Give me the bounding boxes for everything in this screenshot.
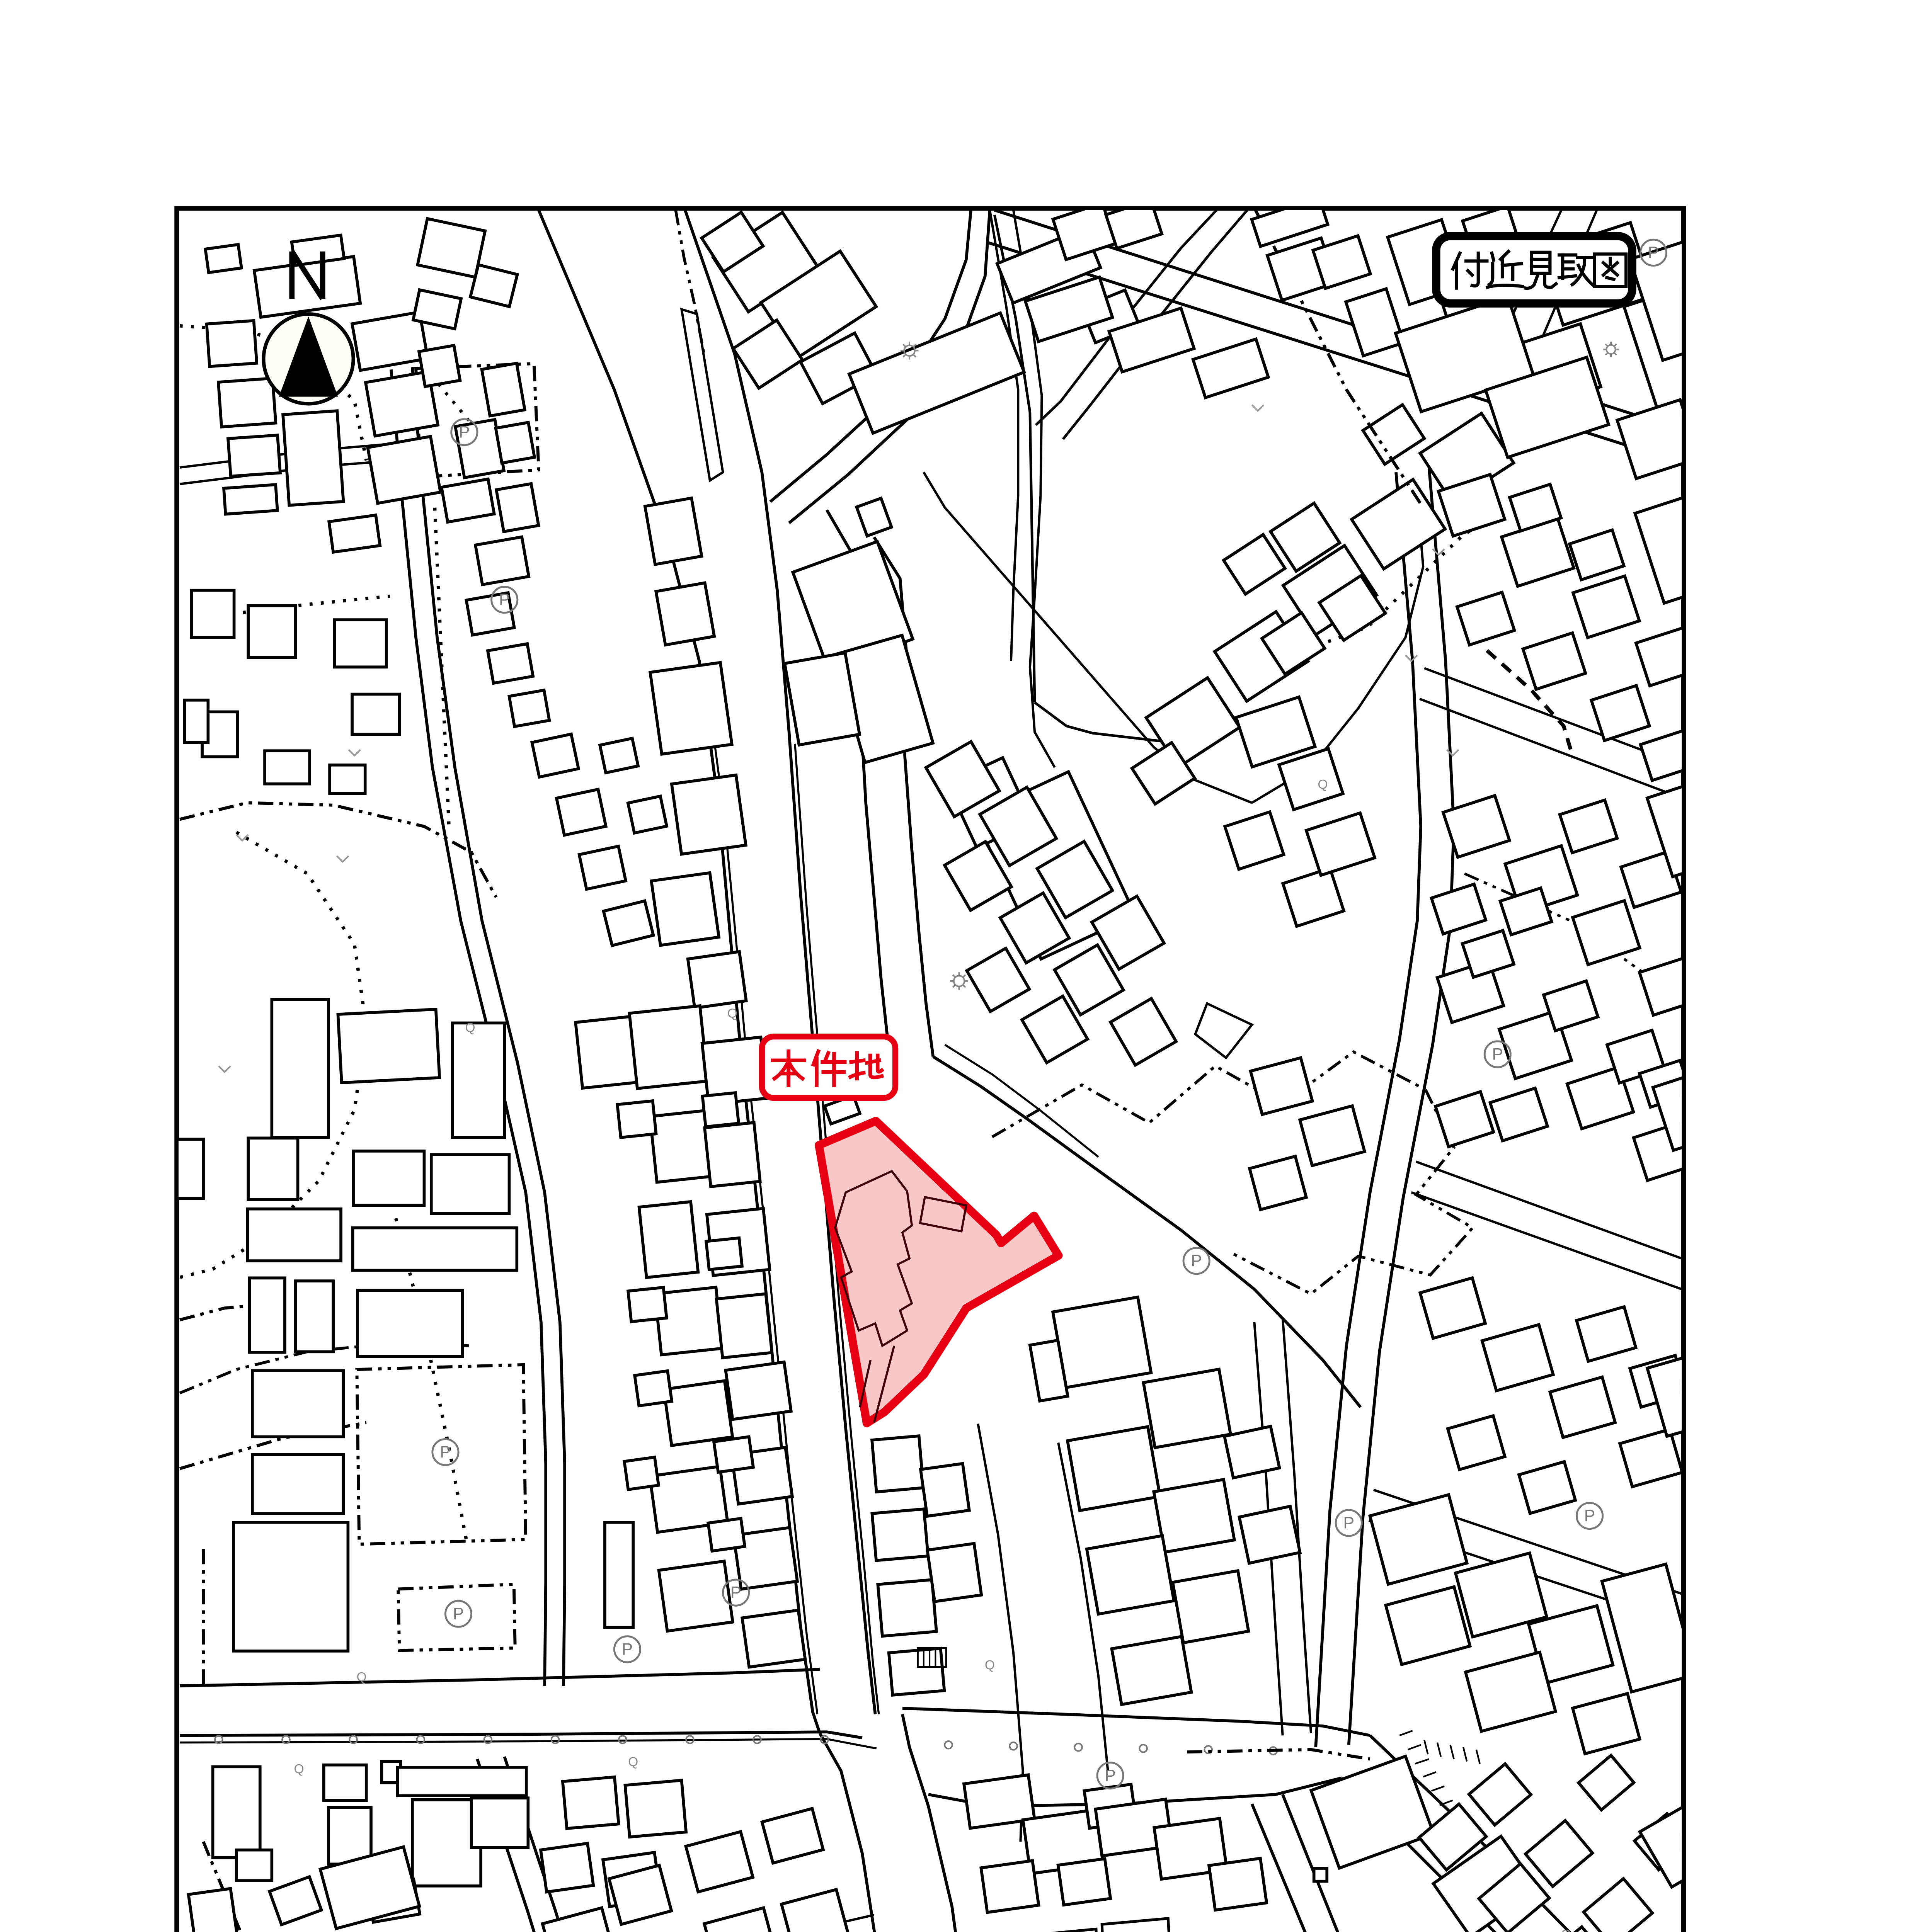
svg-text:Q: Q — [1561, 1927, 1571, 1932]
svg-text:Q: Q — [294, 1762, 304, 1776]
svg-text:P: P — [1105, 1766, 1116, 1785]
svg-text:Q: Q — [985, 1658, 995, 1672]
svg-text:P: P — [730, 1583, 742, 1602]
svg-text:P: P — [1584, 1507, 1595, 1525]
svg-text:P: P — [499, 590, 510, 609]
svg-text:P: P — [453, 1605, 464, 1623]
svg-text:Q: Q — [356, 1670, 366, 1684]
svg-text:Q: Q — [1318, 777, 1328, 792]
svg-text:P: P — [1648, 243, 1659, 262]
svg-text:P: P — [622, 1640, 633, 1658]
svg-text:P: P — [459, 423, 470, 441]
svg-text:P: P — [1191, 1252, 1202, 1270]
svg-text:Q: Q — [727, 1007, 737, 1021]
svg-text:P: P — [440, 1443, 451, 1461]
svg-text:Q: Q — [465, 1020, 475, 1035]
svg-text:P: P — [1343, 1514, 1355, 1532]
svg-text:Q: Q — [628, 1755, 638, 1769]
svg-text:P: P — [1492, 1045, 1503, 1064]
